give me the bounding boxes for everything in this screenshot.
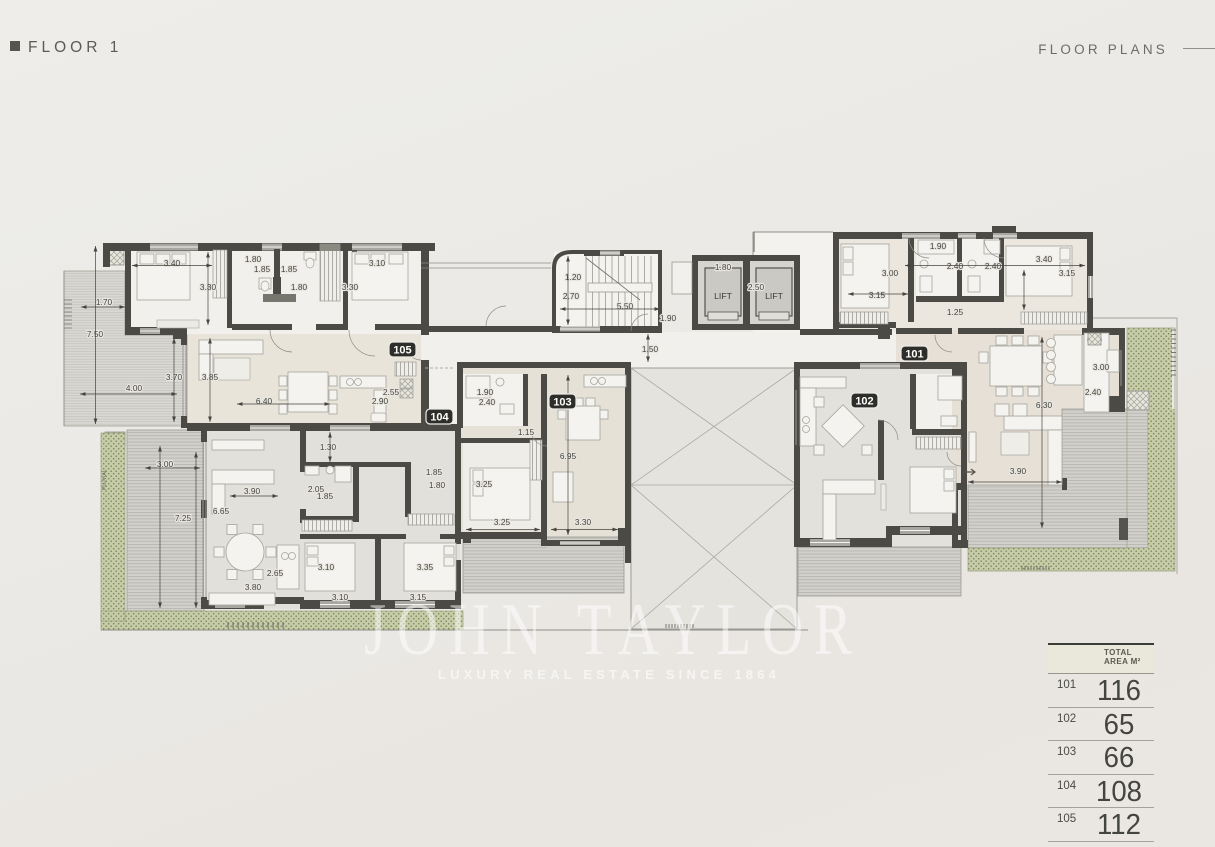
svg-text:103: 103 xyxy=(553,397,571,409)
svg-text:1.30: 1.30 xyxy=(320,442,337,452)
svg-text:4.00: 4.00 xyxy=(126,383,143,393)
svg-text:2.65: 2.65 xyxy=(267,568,284,578)
svg-text:1.80: 1.80 xyxy=(291,282,308,292)
svg-text:3.15: 3.15 xyxy=(869,290,886,300)
svg-text:7.25: 7.25 xyxy=(175,513,192,523)
svg-text:1.50: 1.50 xyxy=(642,344,659,354)
svg-text:1.70: 1.70 xyxy=(96,297,113,307)
svg-text:6.40: 6.40 xyxy=(256,396,273,406)
svg-text:1.90: 1.90 xyxy=(477,387,494,397)
svg-text:3.10: 3.10 xyxy=(369,258,386,268)
svg-text:2.50: 2.50 xyxy=(748,282,765,292)
svg-text:2.40: 2.40 xyxy=(479,397,496,407)
svg-text:2.40: 2.40 xyxy=(947,261,964,271)
svg-text:2.70: 2.70 xyxy=(563,291,580,301)
svg-text:1.20: 1.20 xyxy=(565,272,582,282)
svg-text:1.90: 1.90 xyxy=(660,313,677,323)
svg-text:PLUVIAL: PLUVIAL xyxy=(102,469,108,490)
svg-text:1.80: 1.80 xyxy=(429,480,446,490)
svg-text:1.15: 1.15 xyxy=(518,427,535,437)
svg-text:1.85: 1.85 xyxy=(254,264,271,274)
svg-text:3.00: 3.00 xyxy=(882,268,899,278)
svg-text:3.25: 3.25 xyxy=(476,479,493,489)
svg-text:3.80: 3.80 xyxy=(245,582,262,592)
svg-text:1.90: 1.90 xyxy=(930,241,947,251)
svg-text:102: 102 xyxy=(855,396,873,408)
svg-text:1.25: 1.25 xyxy=(947,307,964,317)
svg-text:LIFT: LIFT xyxy=(765,291,783,301)
svg-text:LIFT: LIFT xyxy=(714,291,732,301)
svg-text:3.30: 3.30 xyxy=(575,517,592,527)
svg-text:6.65: 6.65 xyxy=(213,506,230,516)
svg-text:5.50: 5.50 xyxy=(617,301,634,311)
svg-text:1.80: 1.80 xyxy=(245,254,262,264)
svg-text:3.90: 3.90 xyxy=(244,486,261,496)
svg-text:1.85: 1.85 xyxy=(281,264,298,274)
svg-text:3.40: 3.40 xyxy=(1036,254,1053,264)
svg-text:2.90: 2.90 xyxy=(372,396,389,406)
svg-text:104: 104 xyxy=(430,412,449,424)
svg-text:1.85: 1.85 xyxy=(317,491,334,501)
svg-text:3.40: 3.40 xyxy=(164,258,181,268)
svg-text:105: 105 xyxy=(393,345,411,357)
svg-text:3.35: 3.35 xyxy=(417,562,434,572)
svg-text:2.40: 2.40 xyxy=(1085,387,1102,397)
svg-text:3.10: 3.10 xyxy=(318,562,335,572)
svg-text:101: 101 xyxy=(905,349,923,361)
svg-text:6.30: 6.30 xyxy=(1036,400,1053,410)
svg-text:3.30: 3.30 xyxy=(342,282,359,292)
svg-text:3.90: 3.90 xyxy=(1010,466,1027,476)
svg-text:3.15: 3.15 xyxy=(1059,268,1076,278)
svg-text:3.00: 3.00 xyxy=(1093,362,1110,372)
svg-text:3.10: 3.10 xyxy=(332,592,349,602)
svg-text:1.80: 1.80 xyxy=(715,262,732,272)
svg-text:2.40: 2.40 xyxy=(985,261,1002,271)
svg-text:3.00: 3.00 xyxy=(157,459,174,469)
svg-text:3.25: 3.25 xyxy=(494,517,511,527)
svg-text:1.85: 1.85 xyxy=(426,467,443,477)
